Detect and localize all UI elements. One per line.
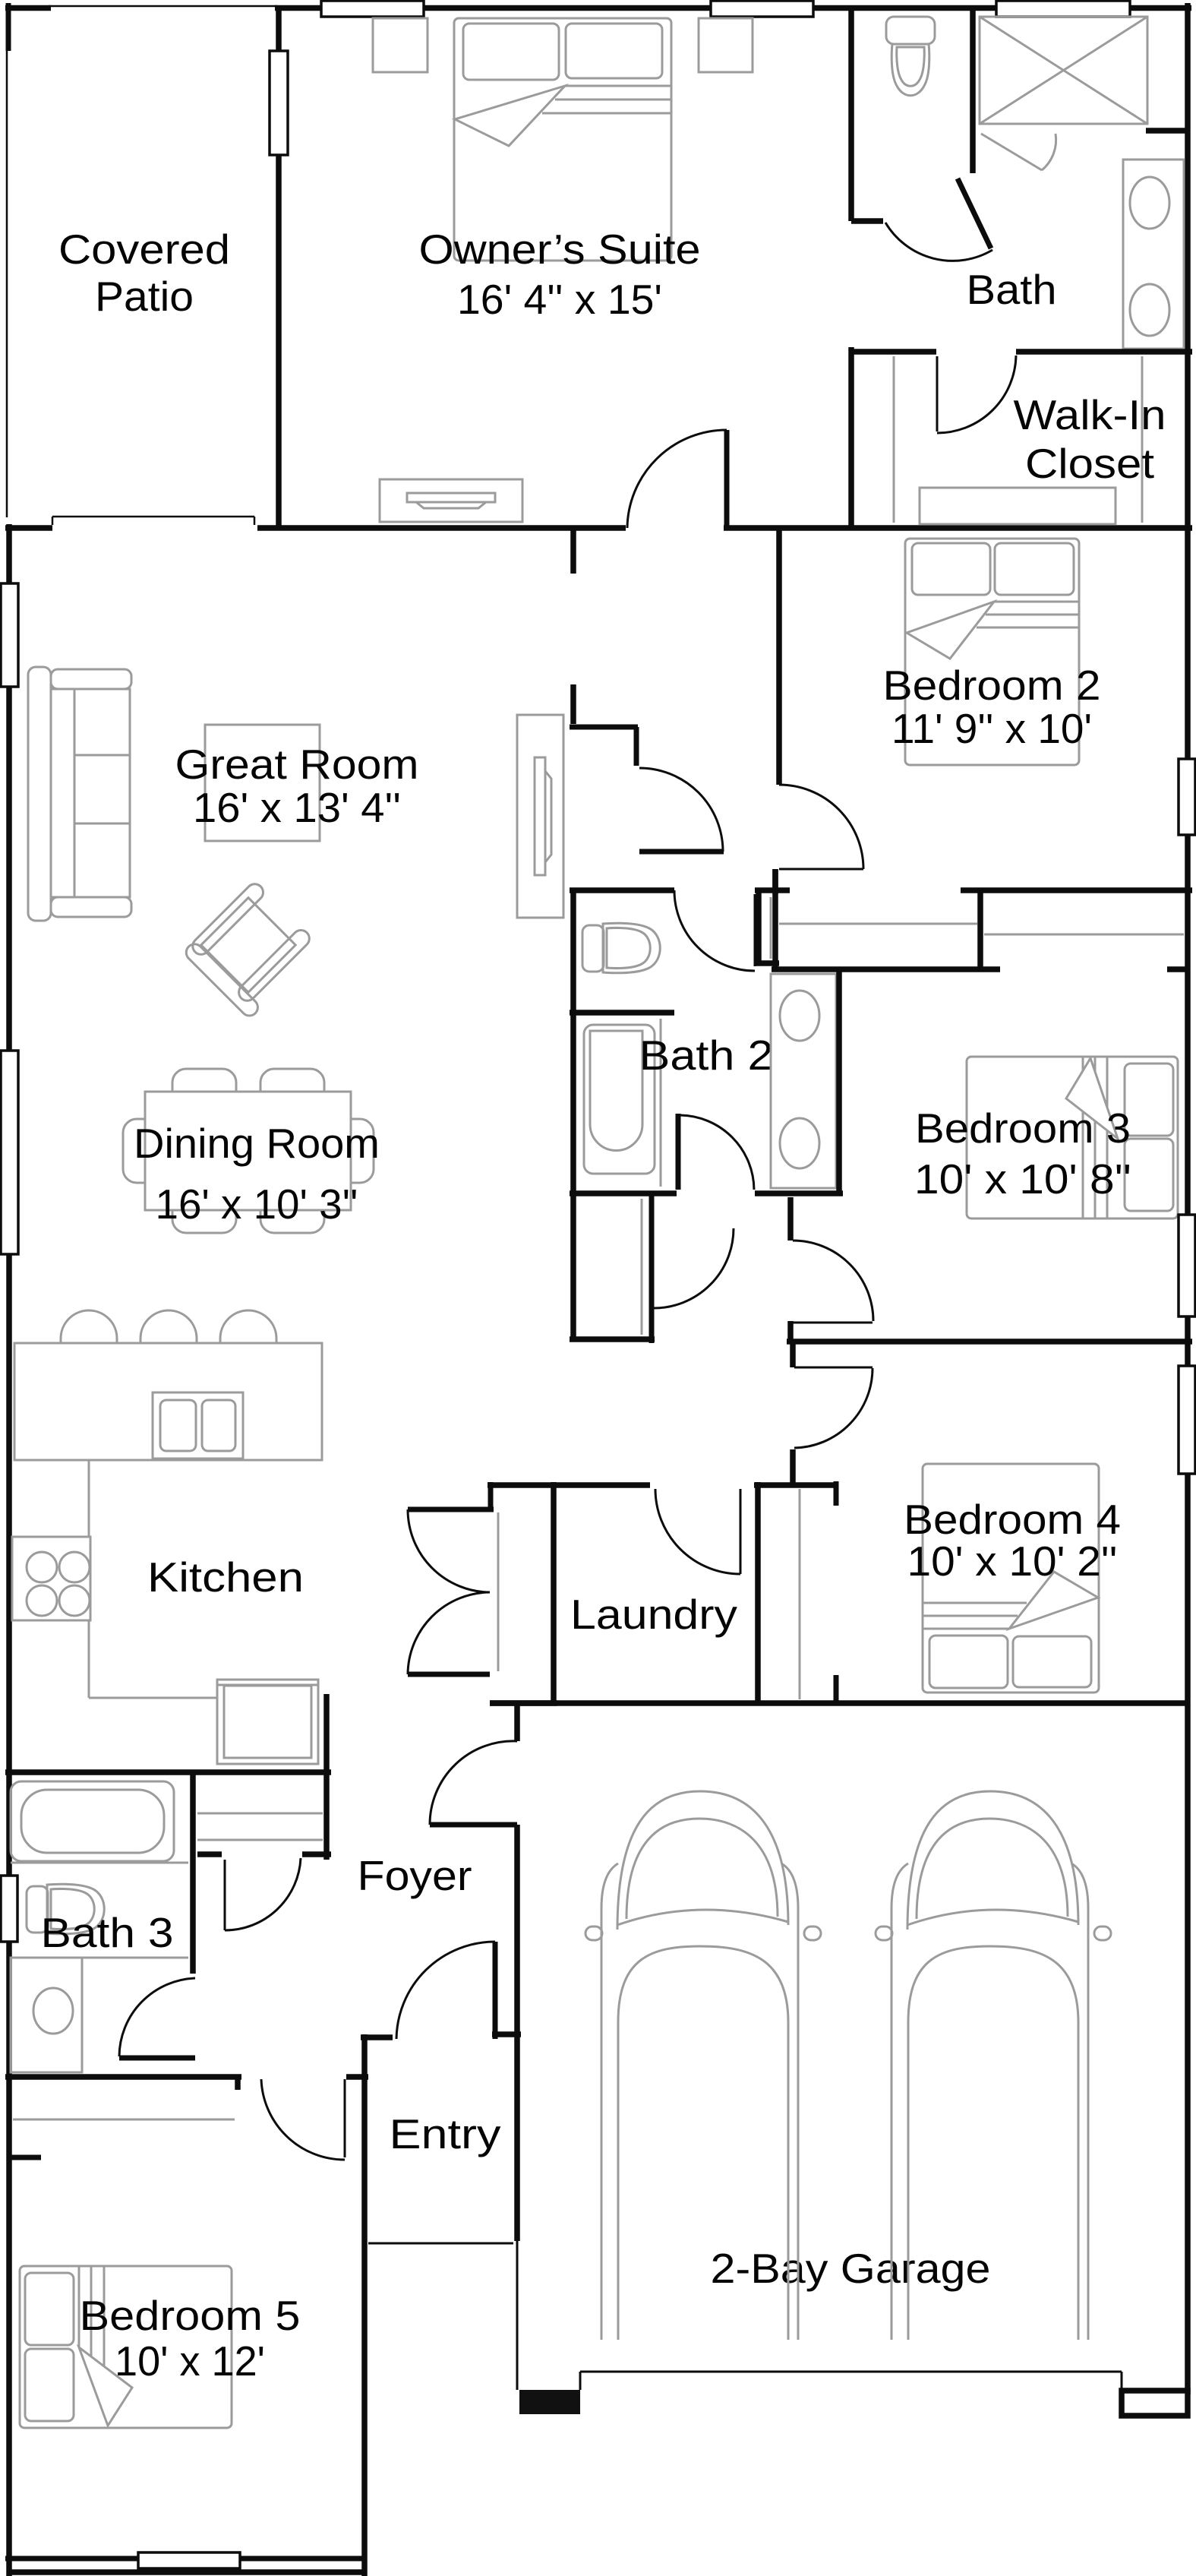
svg-text:Bath 3: Bath 3 — [41, 1909, 174, 1956]
svg-text:10' x 12': 10' x 12' — [115, 2337, 265, 2385]
svg-text:10' x 10' 8'': 10' x 10' 8'' — [914, 1155, 1131, 1203]
svg-text:Foyer: Foyer — [358, 1852, 472, 1899]
svg-text:Bedroom 5: Bedroom 5 — [80, 2292, 301, 2339]
svg-text:Laundry: Laundry — [570, 1591, 738, 1638]
svg-text:Bath: Bath — [967, 266, 1057, 313]
svg-text:Patio: Patio — [95, 273, 194, 320]
svg-text:16' x 10' 3'': 16' x 10' 3'' — [156, 1181, 358, 1228]
svg-text:Great Room: Great Room — [175, 741, 419, 788]
svg-text:Covered: Covered — [58, 226, 230, 273]
svg-text:Bedroom 2: Bedroom 2 — [883, 662, 1101, 709]
svg-text:Kitchen: Kitchen — [147, 1554, 304, 1601]
svg-text:Closet: Closet — [1025, 440, 1154, 487]
svg-text:16' x 13' 4'': 16' x 13' 4'' — [193, 784, 401, 831]
svg-text:10' x 10' 2'': 10' x 10' 2'' — [907, 1538, 1118, 1585]
svg-text:Walk-In: Walk-In — [1014, 391, 1166, 438]
svg-text:Bath 2: Bath 2 — [639, 1032, 774, 1079]
svg-text:11' 9'' x 10': 11' 9'' x 10' — [891, 705, 1092, 752]
svg-text:Bedroom 4: Bedroom 4 — [904, 1496, 1121, 1543]
svg-text:16' 4'' x 15': 16' 4'' x 15' — [457, 276, 662, 323]
svg-text:Dining Room: Dining Room — [134, 1120, 380, 1167]
svg-text:Bedroom 3: Bedroom 3 — [915, 1105, 1131, 1152]
svg-text:Entry: Entry — [390, 2110, 502, 2157]
svg-text:Owner’s Suite: Owner’s Suite — [419, 226, 701, 273]
svg-text:2-Bay Garage: 2-Bay Garage — [711, 2245, 991, 2292]
